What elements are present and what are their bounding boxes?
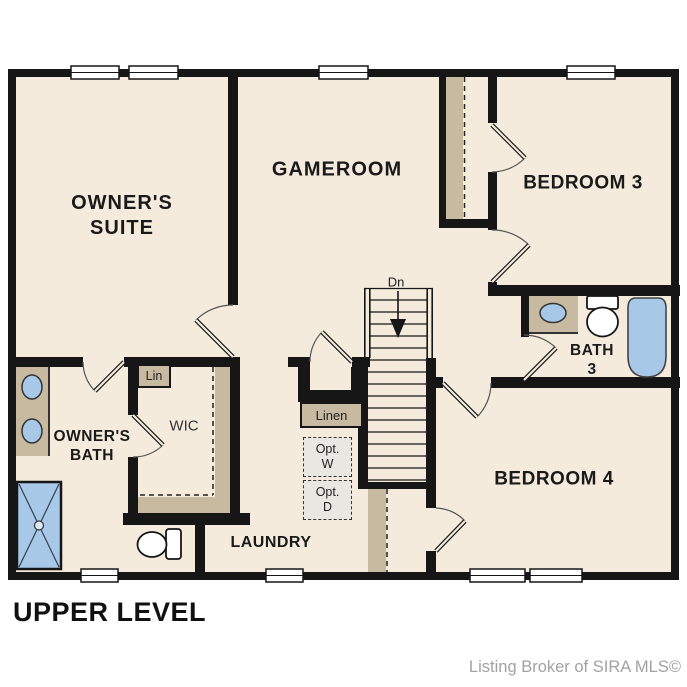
bedroom3-closet-shelf [446,77,463,219]
room-label-owners-bath: OWNER'S BATH [54,427,131,465]
optional-dryer-box: Opt. D [303,480,352,520]
floorplan-page: OWNER'S SUITE GAMEROOM BEDROOM 3 BEDROOM… [0,0,687,687]
owners-bath-toilet-icon [138,529,182,559]
room-label-bath3: BATH 3 [570,341,614,379]
lin-closet-label: Lin [137,364,171,388]
room-label-wic: WIC [169,419,198,434]
bathtub-icon [628,298,666,377]
room-label-bedroom4: BEDROOM 4 [494,470,614,489]
room-label-gameroom: GAMEROOM [272,158,402,183]
outer-wall-right [671,69,679,580]
room-label-bedroom3: BEDROOM 3 [523,174,643,193]
room-label-laundry: LAUNDRY [230,535,311,551]
wic-bottom-shelf [138,497,230,513]
optional-washer-box: Opt. W [303,437,352,477]
stairs-down-label: Dn [388,275,405,290]
bath3-toilet-icon [587,296,618,337]
understair-closet-shelf [368,489,386,572]
bath3-sink-icon [540,304,566,323]
shower-icon [17,482,61,569]
outer-wall-left [8,69,16,580]
sink-icon [22,375,42,399]
linen-closet-label: Linen [300,402,363,428]
listing-watermark: Listing Broker of SIRA MLS© [469,658,681,677]
room-label-owners-suite: OWNER'S SUITE [71,191,173,241]
sink-icon [22,419,42,443]
plan-title: UPPER LEVEL [13,597,206,628]
wic-side-shelf [215,367,230,497]
